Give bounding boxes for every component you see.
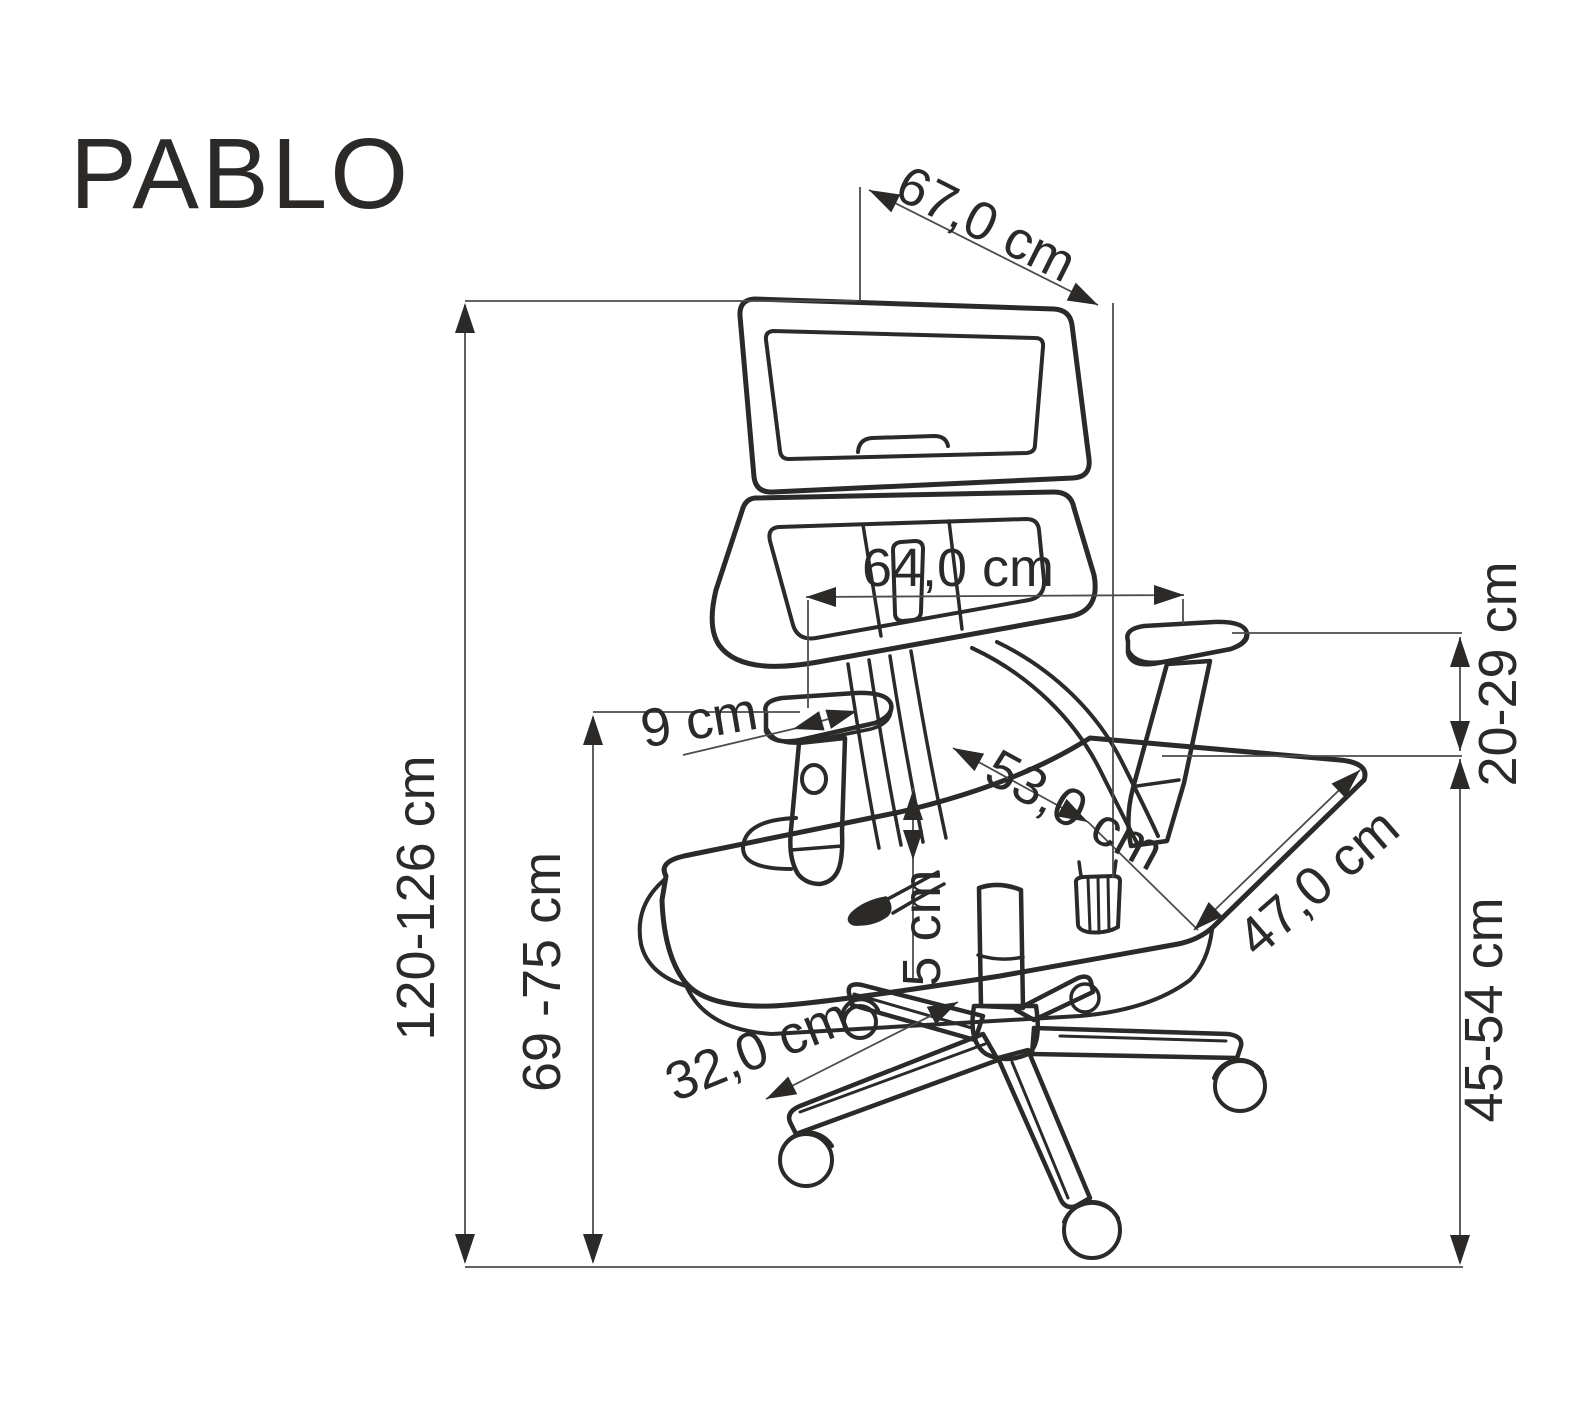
dimension-annotations: 120-126 cm 69 -75 cm 64,0 cm 67,0 cm — [386, 154, 1528, 1267]
product-title: PABLO — [70, 118, 411, 230]
arrowhead — [455, 1234, 475, 1264]
base-leg-front — [998, 1050, 1090, 1207]
arrowhead — [1450, 637, 1470, 667]
dimension-total-height: 120-126 cm — [386, 303, 475, 1264]
dim-label-armrest-pad-width: 9 cm — [636, 681, 761, 759]
caster-front — [1064, 1202, 1120, 1258]
dim-label-backrest-width: 64,0 cm — [862, 538, 1054, 598]
dimension-seat-width: 47,0 cm — [1187, 763, 1410, 968]
extension-lines — [465, 187, 1463, 1267]
caster-front-left — [780, 1134, 832, 1186]
dim-label-seat-thickness: 5 cm — [892, 869, 952, 986]
arrowhead — [455, 303, 475, 333]
arrowhead — [1450, 759, 1470, 789]
dimension-seat-height: 45-54 cm — [1450, 759, 1514, 1265]
caster-right — [1215, 1061, 1265, 1111]
arrowhead — [583, 715, 603, 745]
arrowhead — [1067, 283, 1103, 314]
armrest-left-post — [790, 738, 845, 884]
arrowhead — [583, 1234, 603, 1264]
base-leg-right — [1032, 1028, 1241, 1058]
chair-headrest-outline — [740, 299, 1089, 492]
dimension-backrest-width: 64,0 cm — [806, 538, 1184, 607]
arrowhead — [1154, 585, 1184, 605]
arrowhead — [806, 587, 836, 607]
arrowhead — [761, 1076, 797, 1107]
chair-headrest-panel — [766, 331, 1043, 459]
dim-label-top-depth: 67,0 cm — [887, 154, 1086, 294]
dim-label-seat-height: 45-54 cm — [1454, 897, 1514, 1122]
technical-drawing-page: PABLO — [0, 0, 1574, 1428]
arrowhead — [948, 739, 984, 771]
dim-label-total-height: 120-126 cm — [386, 755, 446, 1040]
arrowhead — [903, 830, 923, 860]
dimension-floor-to-armrest: 69 -75 cm — [512, 715, 603, 1264]
dimension-top-depth: 67,0 cm — [865, 154, 1103, 314]
armrest-left-hole — [802, 765, 826, 793]
chair-headrest-notch — [858, 436, 948, 452]
dim-label-floor-to-armrest: 69 -75 cm — [512, 852, 572, 1092]
dimension-base-leg: 32,0 cm — [657, 986, 963, 1114]
arrowhead — [1450, 1235, 1470, 1265]
gas-lift — [979, 885, 1023, 1008]
dimension-armrest-above-seat: 20-29 cm — [1450, 561, 1528, 786]
dimension-seat-depth: 53,0 cm — [948, 738, 1198, 930]
chair-dimension-diagram: PABLO — [0, 0, 1574, 1428]
dim-label-armrest-above-seat: 20-29 cm — [1468, 561, 1528, 786]
arrowhead — [1450, 721, 1470, 751]
